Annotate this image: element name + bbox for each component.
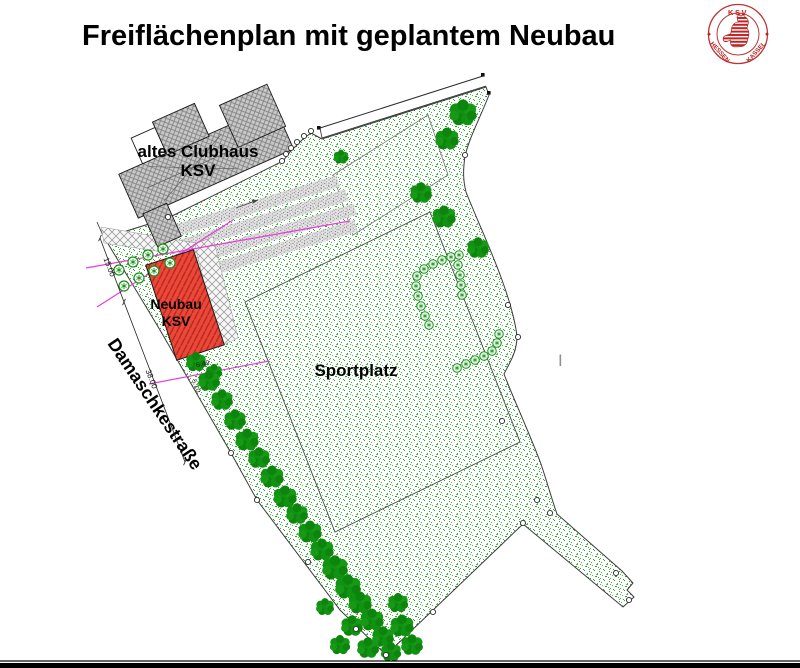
club-logo: KSV HESSEN KASSEL (707, 5, 769, 65)
new-building-label-line1: Neubau (150, 296, 201, 312)
plan-page: Freiflächenplan mit geplantem Neubau (0, 0, 800, 668)
sports-field-label: Sportplatz (314, 361, 397, 380)
site-plan-drawing: altes Clubhaus KSV Neubau KSV (0, 0, 800, 668)
bottom-border (0, 660, 800, 668)
dimension-label-15: 15.00 (102, 256, 118, 278)
old-clubhouse-label-line2: KSV (181, 161, 217, 180)
old-clubhouse-label-line1: altes Clubhaus (138, 142, 259, 161)
new-building-label-line2: KSV (162, 313, 191, 329)
tree-icon (330, 635, 350, 654)
cursor-artifact: I (558, 351, 563, 370)
tree-icon (316, 598, 334, 615)
